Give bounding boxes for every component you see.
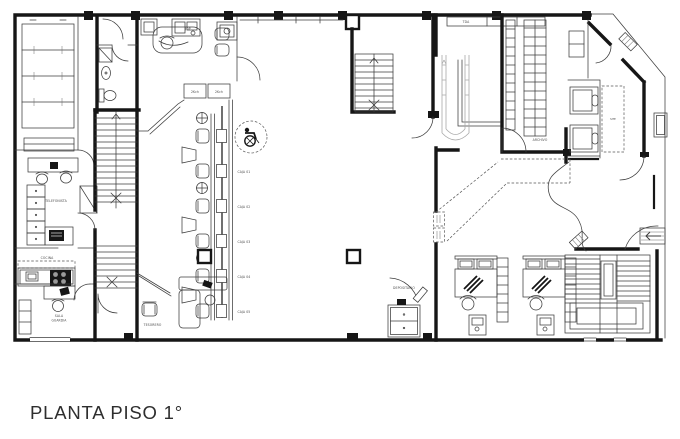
staircase-right	[565, 231, 650, 333]
label-tda: TDA	[462, 20, 470, 24]
property-line	[578, 14, 665, 338]
door-arc	[78, 150, 94, 166]
keyboard	[464, 276, 483, 293]
pedestal	[497, 258, 508, 322]
floor-plan-sheet: TELEFONISTA COCINA SALA GUARDIA	[0, 0, 680, 439]
side-table	[141, 19, 157, 35]
label-sala-guardia-2: GUARDIA	[51, 319, 67, 323]
door-arc	[596, 45, 611, 63]
plan-title: PLANTA PISO 1°	[30, 402, 183, 423]
deposit-slot	[397, 299, 406, 305]
bathroom	[97, 19, 137, 102]
label-caja-05: CAJA 05	[238, 310, 251, 314]
monitor	[59, 287, 70, 296]
stove	[50, 270, 71, 286]
locker	[19, 300, 31, 334]
room-jop: JOP	[141, 17, 260, 81]
shelving	[506, 20, 546, 136]
entrance-sign	[619, 33, 637, 51]
pedestal	[565, 258, 576, 322]
chair	[528, 296, 544, 310]
safe-cabinet-bottom	[570, 125, 598, 152]
chair	[52, 299, 64, 312]
label-archivo: ARCHIVO	[533, 138, 548, 142]
staircase-left	[78, 112, 137, 313]
label-cocina: COCINA	[41, 256, 54, 260]
chair	[205, 295, 215, 305]
door-arc	[625, 226, 658, 249]
guard-desk	[44, 286, 75, 299]
label-kch-right: 2Kch	[215, 90, 223, 94]
queue-rail	[458, 60, 500, 126]
teller-line: 2Kch 2Kch	[137, 84, 250, 320]
door-arc	[98, 294, 117, 313]
guest-chairs	[215, 28, 229, 56]
staircase-ghost	[442, 55, 469, 140]
wheelchair-icon	[235, 121, 267, 153]
door-arc	[103, 19, 123, 39]
depositario: DEPOSITARIO	[388, 278, 427, 337]
safe-cabinet-top	[570, 87, 598, 114]
storage-table	[24, 138, 74, 151]
public-hall: DEPOSITARIO	[346, 15, 439, 337]
door-arc	[112, 45, 128, 61]
label-site: SITE	[610, 117, 616, 121]
chairs	[36, 171, 72, 184]
staircase-central	[346, 15, 439, 138]
jop-desk	[153, 27, 202, 53]
floor-plan-drawing: TELEFONISTA COCINA SALA GUARDIA	[0, 0, 680, 439]
column	[347, 250, 360, 263]
room-storage	[15, 17, 94, 166]
label-caja-02: CAJA 02	[238, 205, 251, 209]
printer-desk	[45, 227, 73, 245]
curved-partition	[548, 162, 586, 251]
label-kch-left: 2Kch	[191, 90, 199, 94]
door-arc	[502, 128, 526, 152]
storefront-glazing	[240, 17, 343, 23]
chair	[142, 302, 157, 316]
workstation-1	[455, 256, 508, 335]
printer-unit	[217, 22, 237, 40]
label-sala-guardia-1: SALA	[55, 314, 64, 318]
label-caja-04: CAJA 04	[238, 275, 251, 279]
label-caja-03: CAJA 03	[238, 240, 251, 244]
sink	[102, 67, 111, 80]
wall-cabinets	[18, 261, 75, 268]
service-corridor	[78, 17, 139, 340]
desk-returns	[182, 147, 196, 303]
workstation-2	[523, 256, 576, 335]
phone-equipment	[50, 162, 58, 169]
queue-guides	[436, 159, 570, 241]
label-tesorero: TESORERO	[143, 323, 162, 327]
room-sala-guardia: SALA GUARDIA	[15, 284, 95, 334]
door-arc	[620, 156, 644, 180]
room-tda: TDA	[442, 17, 545, 140]
label-telefonista: TELEFONISTA	[44, 199, 68, 203]
door-arc	[74, 284, 90, 300]
door-arc	[237, 57, 260, 80]
security-door	[434, 212, 445, 242]
label-caja-01: CAJA 01	[238, 170, 251, 174]
building-shell	[15, 11, 665, 343]
column	[198, 250, 211, 263]
chair	[460, 296, 476, 310]
keyboard	[532, 276, 551, 293]
drawer-cabinets	[27, 185, 45, 245]
safe-room: SITE	[568, 80, 624, 158]
toilet	[99, 89, 116, 102]
sign	[569, 231, 588, 249]
room-cocina: COCINA	[15, 248, 95, 286]
room-telefonista: TELEFONISTA	[27, 158, 97, 245]
ramp	[640, 228, 665, 244]
door-arc	[412, 117, 433, 138]
room-archivo: ARCHIVO	[502, 15, 598, 162]
label-jop: JOP	[184, 27, 191, 31]
door-arc	[78, 213, 95, 230]
